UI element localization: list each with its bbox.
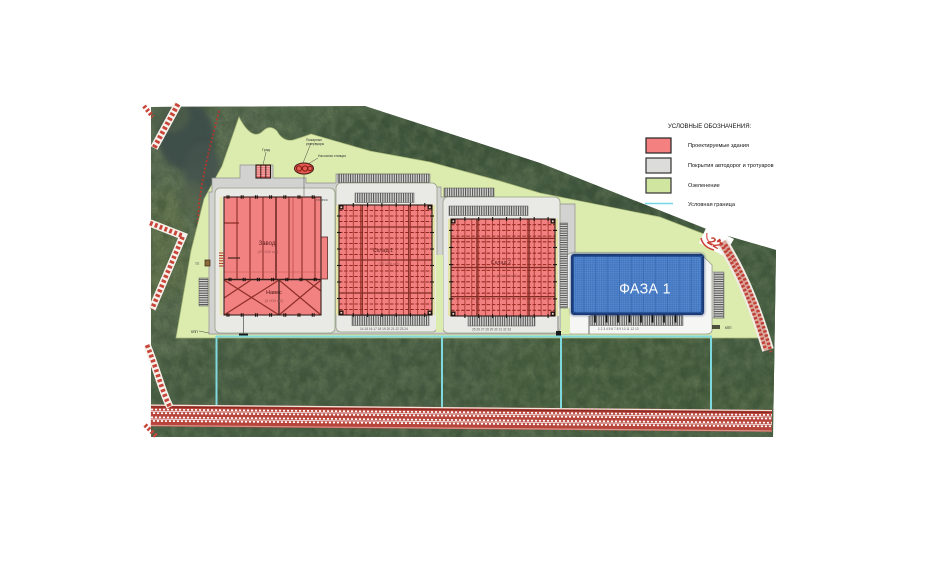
svg-text:УСЛОВНЫЕ ОБОЗНАЧЕНИЯ:: УСЛОВНЫЕ ОБОЗНАЧЕНИЯ: — [668, 124, 752, 130]
svg-text:Проектируемые здания: Проектируемые здания — [688, 143, 749, 149]
svg-text:Град: Град — [262, 148, 271, 152]
svg-text:Склад 1: Склад 1 — [373, 248, 394, 254]
svg-text:КПП: КПП — [725, 326, 732, 330]
svg-text:ФАЗА 1: ФАЗА 1 — [619, 282, 671, 298]
svg-text:Завод: Завод — [259, 241, 276, 247]
svg-text:Склад 2: Склад 2 — [491, 260, 512, 266]
svg-text:(30 000 м2): (30 000 м2) — [379, 261, 401, 266]
svg-text:стоянка: стоянка — [316, 198, 328, 202]
svg-text:Навес: Навес — [266, 290, 282, 296]
svg-text:(25 000 м2): (25 000 м2) — [258, 249, 280, 254]
svg-text:14 15 16 17 18 19 20 21 22 23: 14 15 16 17 18 19 20 21 22 23 24 — [360, 327, 408, 331]
svg-text:КПП: КПП — [191, 330, 198, 334]
svg-text:1 2 3 4 5 6 7 8 9 10 11 12 13: 1 2 3 4 5 6 7 8 9 10 11 12 13 — [598, 327, 639, 331]
svg-text:25 26 27 28 29 30 31 32 33: 25 26 27 28 29 30 31 32 33 — [472, 328, 511, 332]
svg-text:ТП: ТП — [195, 262, 200, 266]
svg-text:(5 000 м2): (5 000 м2) — [265, 298, 284, 303]
svg-text:Условная граница: Условная граница — [688, 202, 736, 208]
svg-text:Покрытия автодорог и тротуаров: Покрытия автодорог и тротуаров — [688, 163, 774, 169]
svg-text:резервуары: резервуары — [306, 142, 325, 146]
svg-text:(30 000 м2): (30 000 м2) — [497, 273, 519, 278]
svg-text:Озеленение: Озеленение — [688, 183, 720, 189]
svg-text:Насосная станция: Насосная станция — [318, 154, 346, 158]
